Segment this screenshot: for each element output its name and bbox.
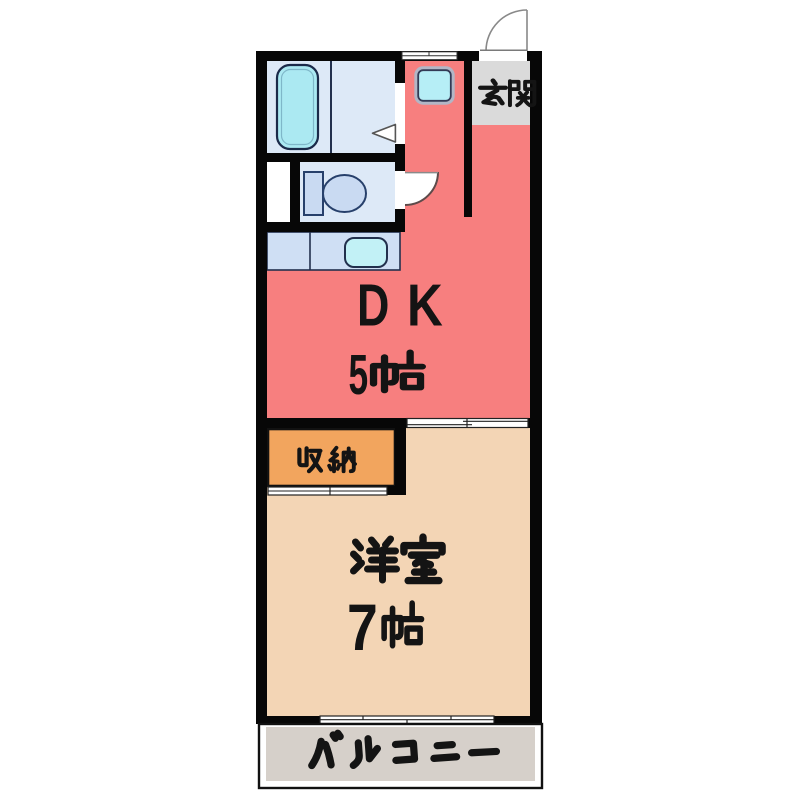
svg-text:K: K — [407, 272, 443, 338]
svg-text:D: D — [357, 274, 389, 339]
svg-text:7: 7 — [347, 590, 378, 664]
svg-text:5: 5 — [349, 344, 369, 408]
